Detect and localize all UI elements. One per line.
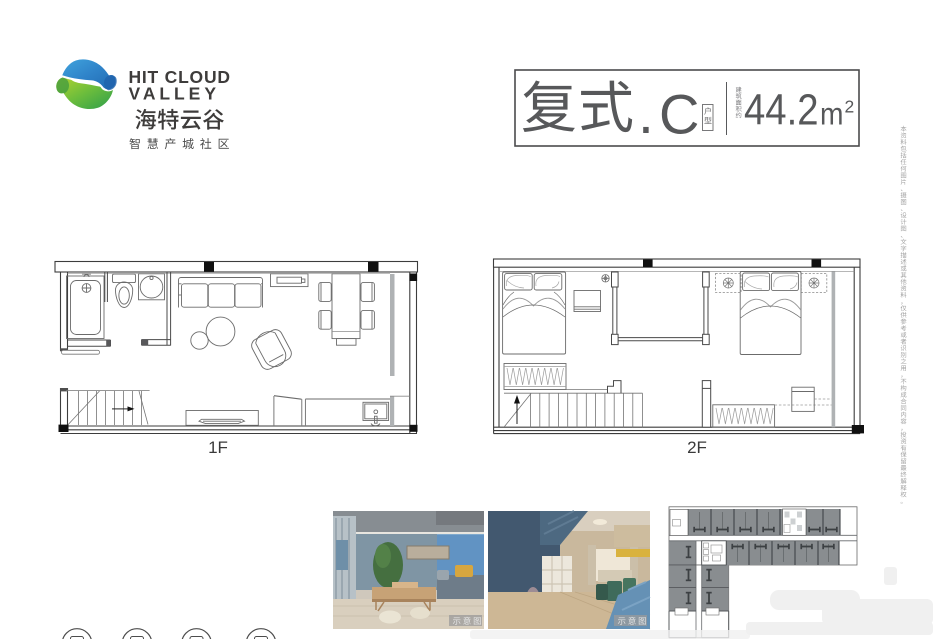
svg-text:1F: 1F (208, 438, 228, 457)
svg-text:C: C (659, 83, 699, 146)
svg-text:2: 2 (845, 97, 855, 117)
svg-text:2F: 2F (687, 438, 707, 457)
svg-text:.: . (638, 82, 654, 146)
svg-text:m: m (820, 95, 844, 131)
svg-text:44.2: 44.2 (744, 86, 819, 134)
